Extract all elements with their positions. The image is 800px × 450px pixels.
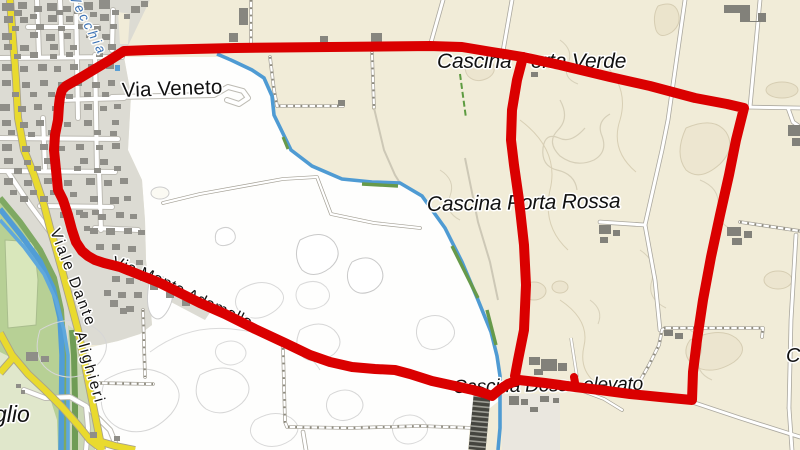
svg-text:Via Veneto: Via Veneto — [121, 75, 223, 102]
svg-text:glio: glio — [0, 401, 30, 427]
svg-text:C: C — [786, 345, 800, 367]
